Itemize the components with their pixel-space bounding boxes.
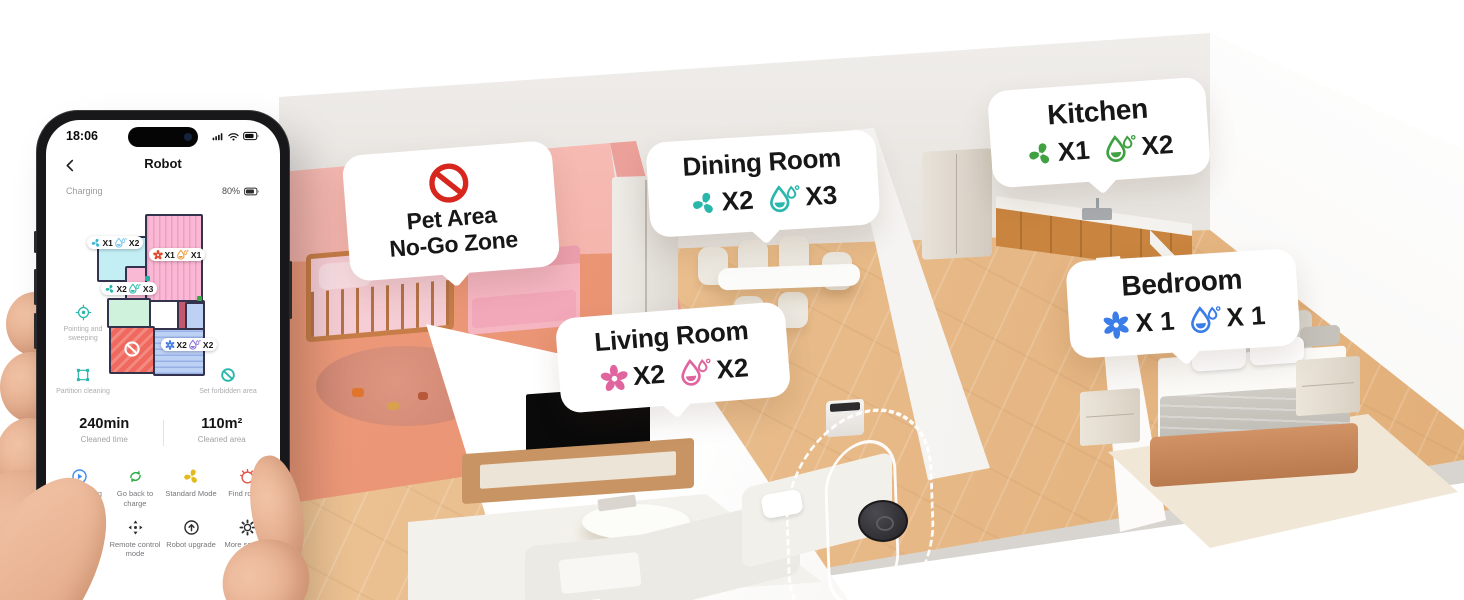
fan-count: X2 xyxy=(721,185,755,218)
target-icon xyxy=(75,304,92,321)
bubble-dining-room: Dining Room X2 X3 xyxy=(645,129,880,238)
status-bar: 18:06 xyxy=(46,129,280,143)
robot-upgrade-button[interactable]: Robot upgrade xyxy=(164,519,218,560)
volume-button xyxy=(34,269,37,305)
battery-small-icon xyxy=(244,187,260,196)
drop-count: X2 xyxy=(203,340,213,350)
fan-icon xyxy=(105,284,115,294)
bubble-title: Dining Room xyxy=(660,142,863,183)
cleaned-time-label: Cleaned time xyxy=(46,435,163,444)
remote-control-mode-button[interactable]: Remote control mode xyxy=(108,519,162,560)
toy xyxy=(418,392,428,400)
fan-mode-icon xyxy=(183,468,200,485)
map-no-go-icon xyxy=(123,340,141,358)
water-drop-icon xyxy=(128,283,141,294)
drop-count: X3 xyxy=(143,284,153,294)
volume-button xyxy=(34,313,37,349)
toy xyxy=(352,388,364,397)
power-button xyxy=(289,261,292,319)
map-pill: X1 X2 xyxy=(87,236,143,249)
fan-icon xyxy=(690,189,718,217)
kitchen-faucet xyxy=(1096,198,1099,208)
water-drop-icon xyxy=(677,356,713,388)
button-label: Robot upgrade xyxy=(166,540,216,550)
stats-row: 240min Cleaned time 110m² Cleaned area xyxy=(46,416,280,446)
fan-count: X2 xyxy=(117,284,127,294)
battery-percent: 80% xyxy=(222,186,240,196)
drop-count: X2 xyxy=(715,352,749,385)
bubble-pet-area: Pet Area No-Go Zone xyxy=(341,140,560,282)
bubble-bedroom: Bedroom X 1 X 1 xyxy=(1065,248,1301,359)
signal-bars-icon xyxy=(211,130,224,143)
forbidden-icon xyxy=(220,367,236,383)
button-label: Set forbidden area xyxy=(196,387,260,396)
cleaning-map: X1 X2 X1 X1 X2 X3 X2 xyxy=(91,212,217,376)
flower-icon xyxy=(153,250,163,260)
fan-count: X2 xyxy=(177,340,187,350)
partition-frame-icon xyxy=(75,367,91,383)
water-drop-icon xyxy=(766,183,802,214)
water-drop-icon xyxy=(114,237,127,248)
page-title: Robot xyxy=(46,156,280,171)
water-drop-icon xyxy=(176,249,189,260)
toy xyxy=(388,402,399,410)
button-label: Pointing and sweeping xyxy=(50,325,116,343)
battery-icon xyxy=(243,131,260,141)
status-time: 18:06 xyxy=(66,129,98,143)
fan-count: X1 xyxy=(165,250,175,260)
cleaned-time-value: 240min xyxy=(46,416,163,432)
pinwheel-icon xyxy=(1102,310,1132,340)
fan-count: X1 xyxy=(1057,135,1091,168)
fan-count: X1 xyxy=(103,238,113,248)
fan-icon xyxy=(1026,140,1054,168)
pointing-and-sweeping-button[interactable]: Pointing and sweeping xyxy=(50,304,116,343)
recharge-icon xyxy=(127,468,144,485)
go-back-to-charge-button[interactable]: Go back to charge xyxy=(108,468,162,509)
button-label: Partition cleaning xyxy=(50,387,116,396)
cleaned-area-label: Cleaned area xyxy=(164,435,281,444)
charging-status: Charging xyxy=(66,186,103,196)
fan-count: X2 xyxy=(632,359,666,392)
volume-button xyxy=(34,231,37,253)
button-label: Go back to charge xyxy=(108,489,162,509)
robot-vacuum xyxy=(858,500,908,542)
nightstand xyxy=(1296,356,1360,416)
map-dot xyxy=(197,296,202,301)
fridge xyxy=(922,148,992,260)
page: Pet Area No-Go Zone Dining Room X2 X3 Ki… xyxy=(0,0,1464,600)
map-dot xyxy=(145,276,150,281)
partition-cleaning-button[interactable]: Partition cleaning xyxy=(50,366,116,396)
map-pill: X2 X2 xyxy=(161,338,217,351)
drop-count: X2 xyxy=(1141,129,1175,162)
drop-count: X2 xyxy=(129,238,139,248)
water-drop-icon xyxy=(188,339,201,350)
water-drop-icon xyxy=(1187,304,1223,335)
no-go-icon xyxy=(424,158,473,207)
kitchen-sink xyxy=(1082,208,1112,220)
nightstand xyxy=(1080,388,1140,446)
map-pill: X1 X1 xyxy=(149,248,205,261)
wifi-icon xyxy=(227,130,240,143)
back-chevron-icon[interactable] xyxy=(62,157,79,174)
map-pill: X2 X3 xyxy=(101,282,157,295)
bubble-kitchen: Kitchen X1 X2 xyxy=(987,77,1211,189)
set-forbidden-area-button[interactable]: Set forbidden area xyxy=(196,366,260,396)
move-cross-icon xyxy=(127,519,144,536)
water-drop-icon xyxy=(1102,133,1138,164)
bubble-living-room: Living Room X2 X2 xyxy=(555,301,792,414)
cleaned-area-value: 110m² xyxy=(164,416,281,432)
bubble-title: Kitchen xyxy=(1002,89,1194,134)
power-row: Charging 80% xyxy=(46,186,280,196)
bubble-title: Bedroom xyxy=(1080,261,1284,305)
bed-pillow xyxy=(1300,325,1340,348)
fan-count: X 1 xyxy=(1135,306,1176,339)
pinwheel-icon xyxy=(165,340,175,350)
drop-count: X3 xyxy=(804,180,838,213)
button-label: Standard Mode xyxy=(165,489,216,499)
map-room-blue[interactable] xyxy=(185,302,205,330)
fan-icon xyxy=(91,238,101,248)
button-label: Remote control mode xyxy=(108,540,162,560)
drop-count: X 1 xyxy=(1226,300,1267,333)
standard-mode-button[interactable]: Standard Mode xyxy=(164,468,218,509)
upgrade-icon xyxy=(183,519,200,536)
nav-bar: Robot xyxy=(46,156,280,178)
flower-icon xyxy=(599,363,629,393)
drop-count: X1 xyxy=(191,250,201,260)
